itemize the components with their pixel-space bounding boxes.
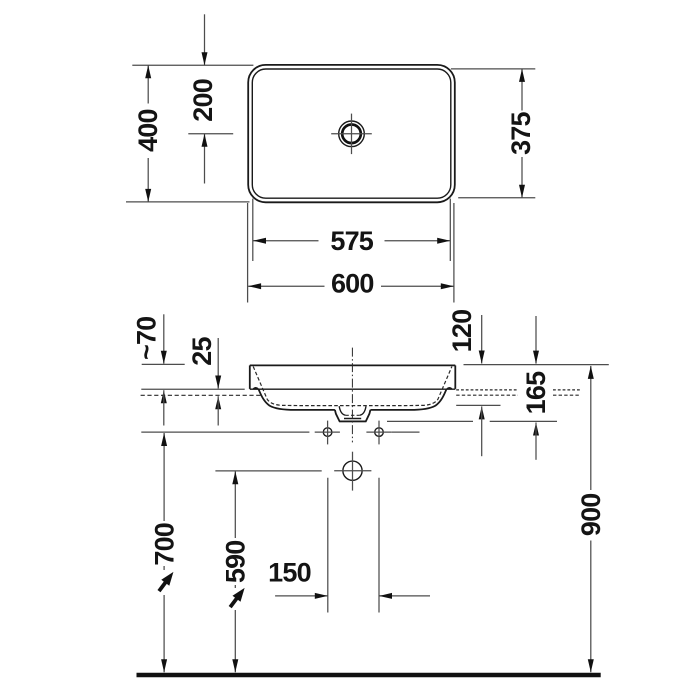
svg-text:700: 700 bbox=[150, 523, 180, 566]
svg-text:575: 575 bbox=[330, 226, 373, 256]
svg-text:120: 120 bbox=[447, 310, 477, 353]
svg-text:25: 25 bbox=[187, 337, 217, 366]
svg-text:~70: ~70 bbox=[132, 317, 162, 360]
svg-text:375: 375 bbox=[506, 111, 536, 154]
svg-text:165: 165 bbox=[521, 371, 551, 414]
svg-text:150: 150 bbox=[268, 558, 311, 588]
svg-text:600: 600 bbox=[331, 268, 374, 298]
svg-text:400: 400 bbox=[133, 109, 163, 152]
svg-text:590: 590 bbox=[220, 540, 250, 583]
svg-text:200: 200 bbox=[188, 79, 218, 122]
svg-text:900: 900 bbox=[576, 493, 606, 536]
